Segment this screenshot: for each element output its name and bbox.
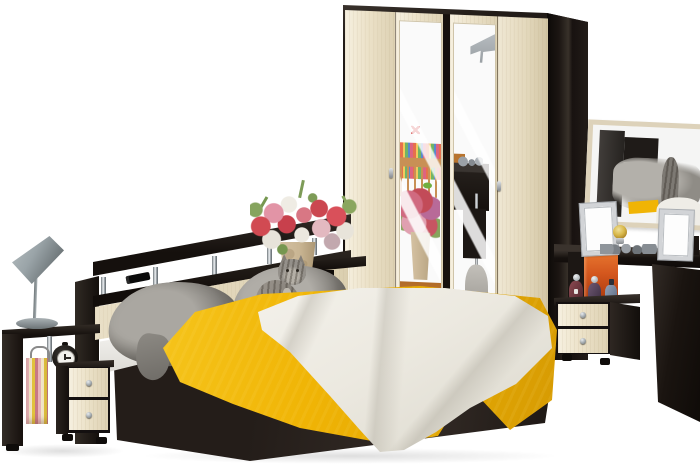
cat-eye-left [286,269,289,272]
vmirror-dark-panel [596,130,625,217]
vanity-leg-panel [652,264,700,422]
cat-eye-right [296,269,299,272]
gold-jar-lid [613,225,627,239]
ns-left-side [56,366,68,434]
perfume-bottle-3 [605,279,617,305]
photo-frame-2 [658,209,694,260]
ns-left-foot-1 [62,434,73,441]
jewelry-scatter [600,244,658,254]
striped-bag [26,358,48,424]
ns-left-foot-2 [96,437,107,444]
mirror-right [453,23,496,323]
headboard-post-3 [212,256,217,275]
left-unit-foot [6,444,19,451]
lamp-base [16,318,58,329]
ns-right-side [610,302,640,360]
mirror-glare-2 [454,24,495,322]
vmirror-white-pillow [656,197,700,226]
clock-hand-minute [65,357,71,359]
orange-decor-panel [584,251,618,307]
vmirror-shelf-box [624,137,659,163]
vanity-wall-mirror [584,119,700,230]
vmirror-yellow [628,200,659,215]
ns-left-knob-2 [86,412,92,418]
desk-lamp [8,232,68,334]
wardrobe-handle-right [497,181,501,191]
mirror-left [399,20,442,320]
mirror-glare [400,21,441,319]
vmirror-cat [660,156,680,209]
bottle-body-2 [588,283,601,304]
left-unit-panel [2,334,23,446]
bottle-cap-3 [609,279,614,285]
gold-jar [613,225,627,244]
wardrobe-handle-left [389,168,393,178]
nightstand-left [56,360,114,446]
bottle-stopper-2 [591,276,598,283]
lamp-head [12,236,64,284]
ns-right-foot-2 [600,358,610,365]
flower-bouquet [250,190,358,256]
dark-box-on-table [686,236,699,255]
bottle-body-3 [605,285,617,305]
wardrobe-side-panel [547,13,588,360]
ns-left-knob-1 [86,380,92,386]
perfume-bottle-2 [588,276,601,304]
bedroom-furniture-photo [0,0,700,464]
vmirror-pillows [612,156,700,212]
frame-stand [676,225,692,253]
gold-jar-base [616,238,624,244]
